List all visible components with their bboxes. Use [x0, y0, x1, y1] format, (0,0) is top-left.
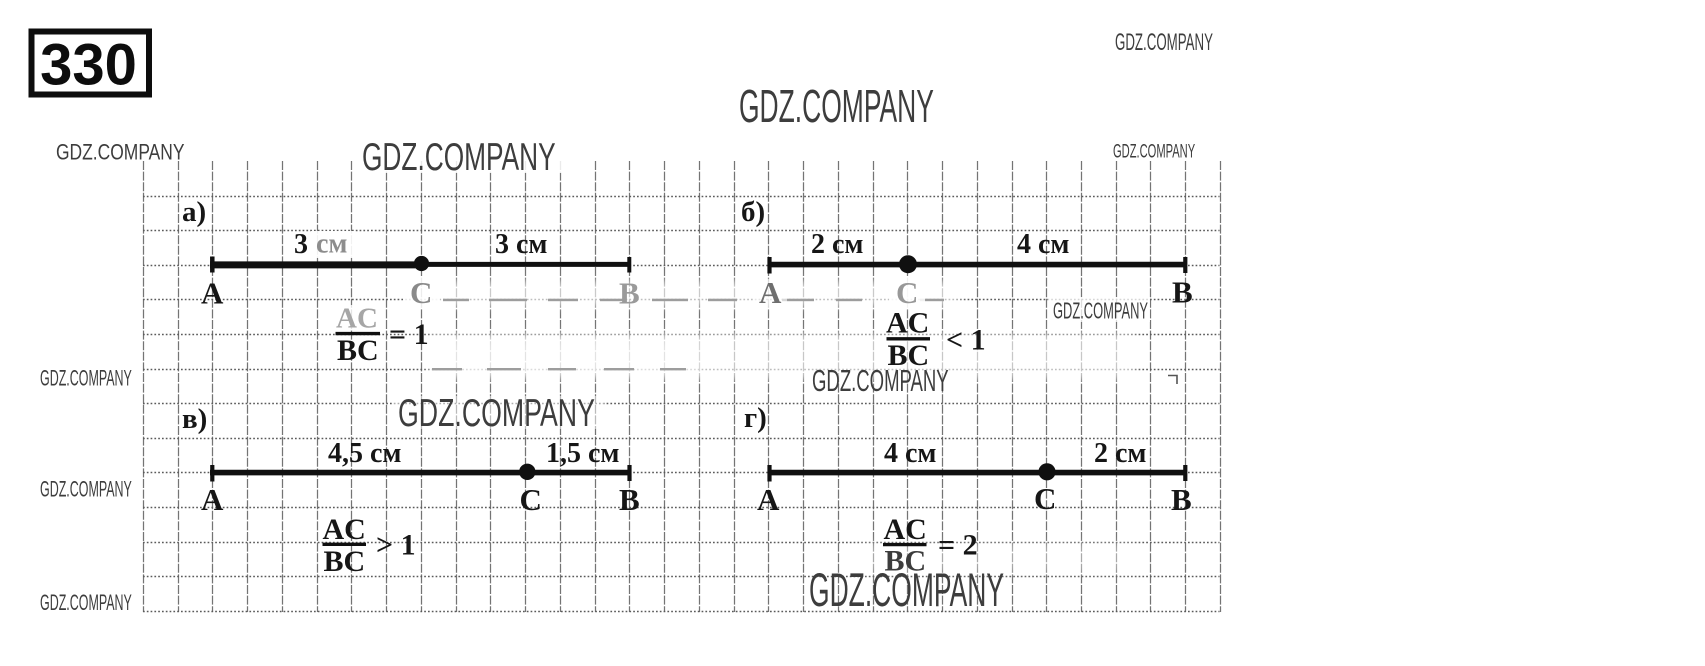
svg-text:BC: BC [337, 334, 379, 367]
svg-text:GDZ.COMPANY: GDZ.COMPANY [809, 564, 1004, 617]
svg-text:GDZ.COMPANY: GDZ.COMPANY [812, 364, 949, 398]
svg-text:A: A [201, 276, 224, 311]
svg-text:C: C [1034, 481, 1056, 516]
svg-text:2 см: 2 см [1094, 438, 1147, 469]
svg-text:GDZ.COMPANY: GDZ.COMPANY [1115, 30, 1213, 56]
svg-text:4,5 см: 4,5 см [328, 438, 402, 469]
svg-text:в): в) [182, 403, 207, 435]
svg-text:< 1: < 1 [946, 324, 986, 357]
svg-text:AC: AC [323, 513, 366, 546]
svg-text:C: C [410, 275, 432, 310]
svg-text:4 см: 4 см [1017, 229, 1070, 260]
svg-text:B: B [1172, 275, 1193, 310]
svg-text:AC: AC [886, 307, 929, 340]
svg-text:AC: AC [884, 513, 927, 546]
svg-text:B: B [619, 276, 640, 311]
svg-text:GDZ.COMPANY: GDZ.COMPANY [56, 141, 185, 165]
svg-text:а): а) [182, 196, 206, 228]
svg-text:GDZ.COMPANY: GDZ.COMPANY [1053, 298, 1148, 324]
svg-text:GDZ.COMPANY: GDZ.COMPANY [398, 392, 595, 435]
svg-text:GDZ.COMPANY: GDZ.COMPANY [40, 477, 132, 502]
svg-text:4 см: 4 см [884, 438, 937, 469]
svg-text:C: C [896, 275, 918, 310]
svg-text:A: A [201, 482, 224, 517]
svg-text:GDZ.COMPANY: GDZ.COMPANY [40, 366, 132, 391]
svg-text:GDZ.COMPANY: GDZ.COMPANY [739, 81, 934, 133]
svg-text:см: см [316, 229, 348, 260]
svg-text:A: A [759, 275, 782, 310]
svg-text:= 2: = 2 [938, 529, 978, 562]
svg-text:BC: BC [324, 545, 366, 578]
svg-text:б): б) [741, 196, 765, 228]
svg-text:GDZ.COMPANY: GDZ.COMPANY [362, 136, 556, 179]
svg-text:2 см: 2 см [811, 229, 864, 260]
svg-text:AC: AC [336, 303, 378, 335]
svg-text:1,5 см: 1,5 см [546, 438, 620, 469]
svg-text:> 1: > 1 [376, 529, 416, 562]
svg-text:330: 330 [40, 33, 137, 98]
svg-text:г): г) [744, 402, 767, 434]
svg-text:C: C [520, 482, 542, 517]
svg-text:= 1: = 1 [389, 318, 429, 351]
svg-text:A: A [757, 482, 780, 517]
svg-text:3 см: 3 см [495, 229, 548, 260]
svg-text:B: B [1171, 482, 1192, 517]
svg-text:3: 3 [294, 229, 308, 260]
svg-text:B: B [619, 482, 640, 517]
svg-text:GDZ.COMPANY: GDZ.COMPANY [40, 590, 132, 615]
svg-text:GDZ.COMPANY: GDZ.COMPANY [1113, 142, 1195, 163]
